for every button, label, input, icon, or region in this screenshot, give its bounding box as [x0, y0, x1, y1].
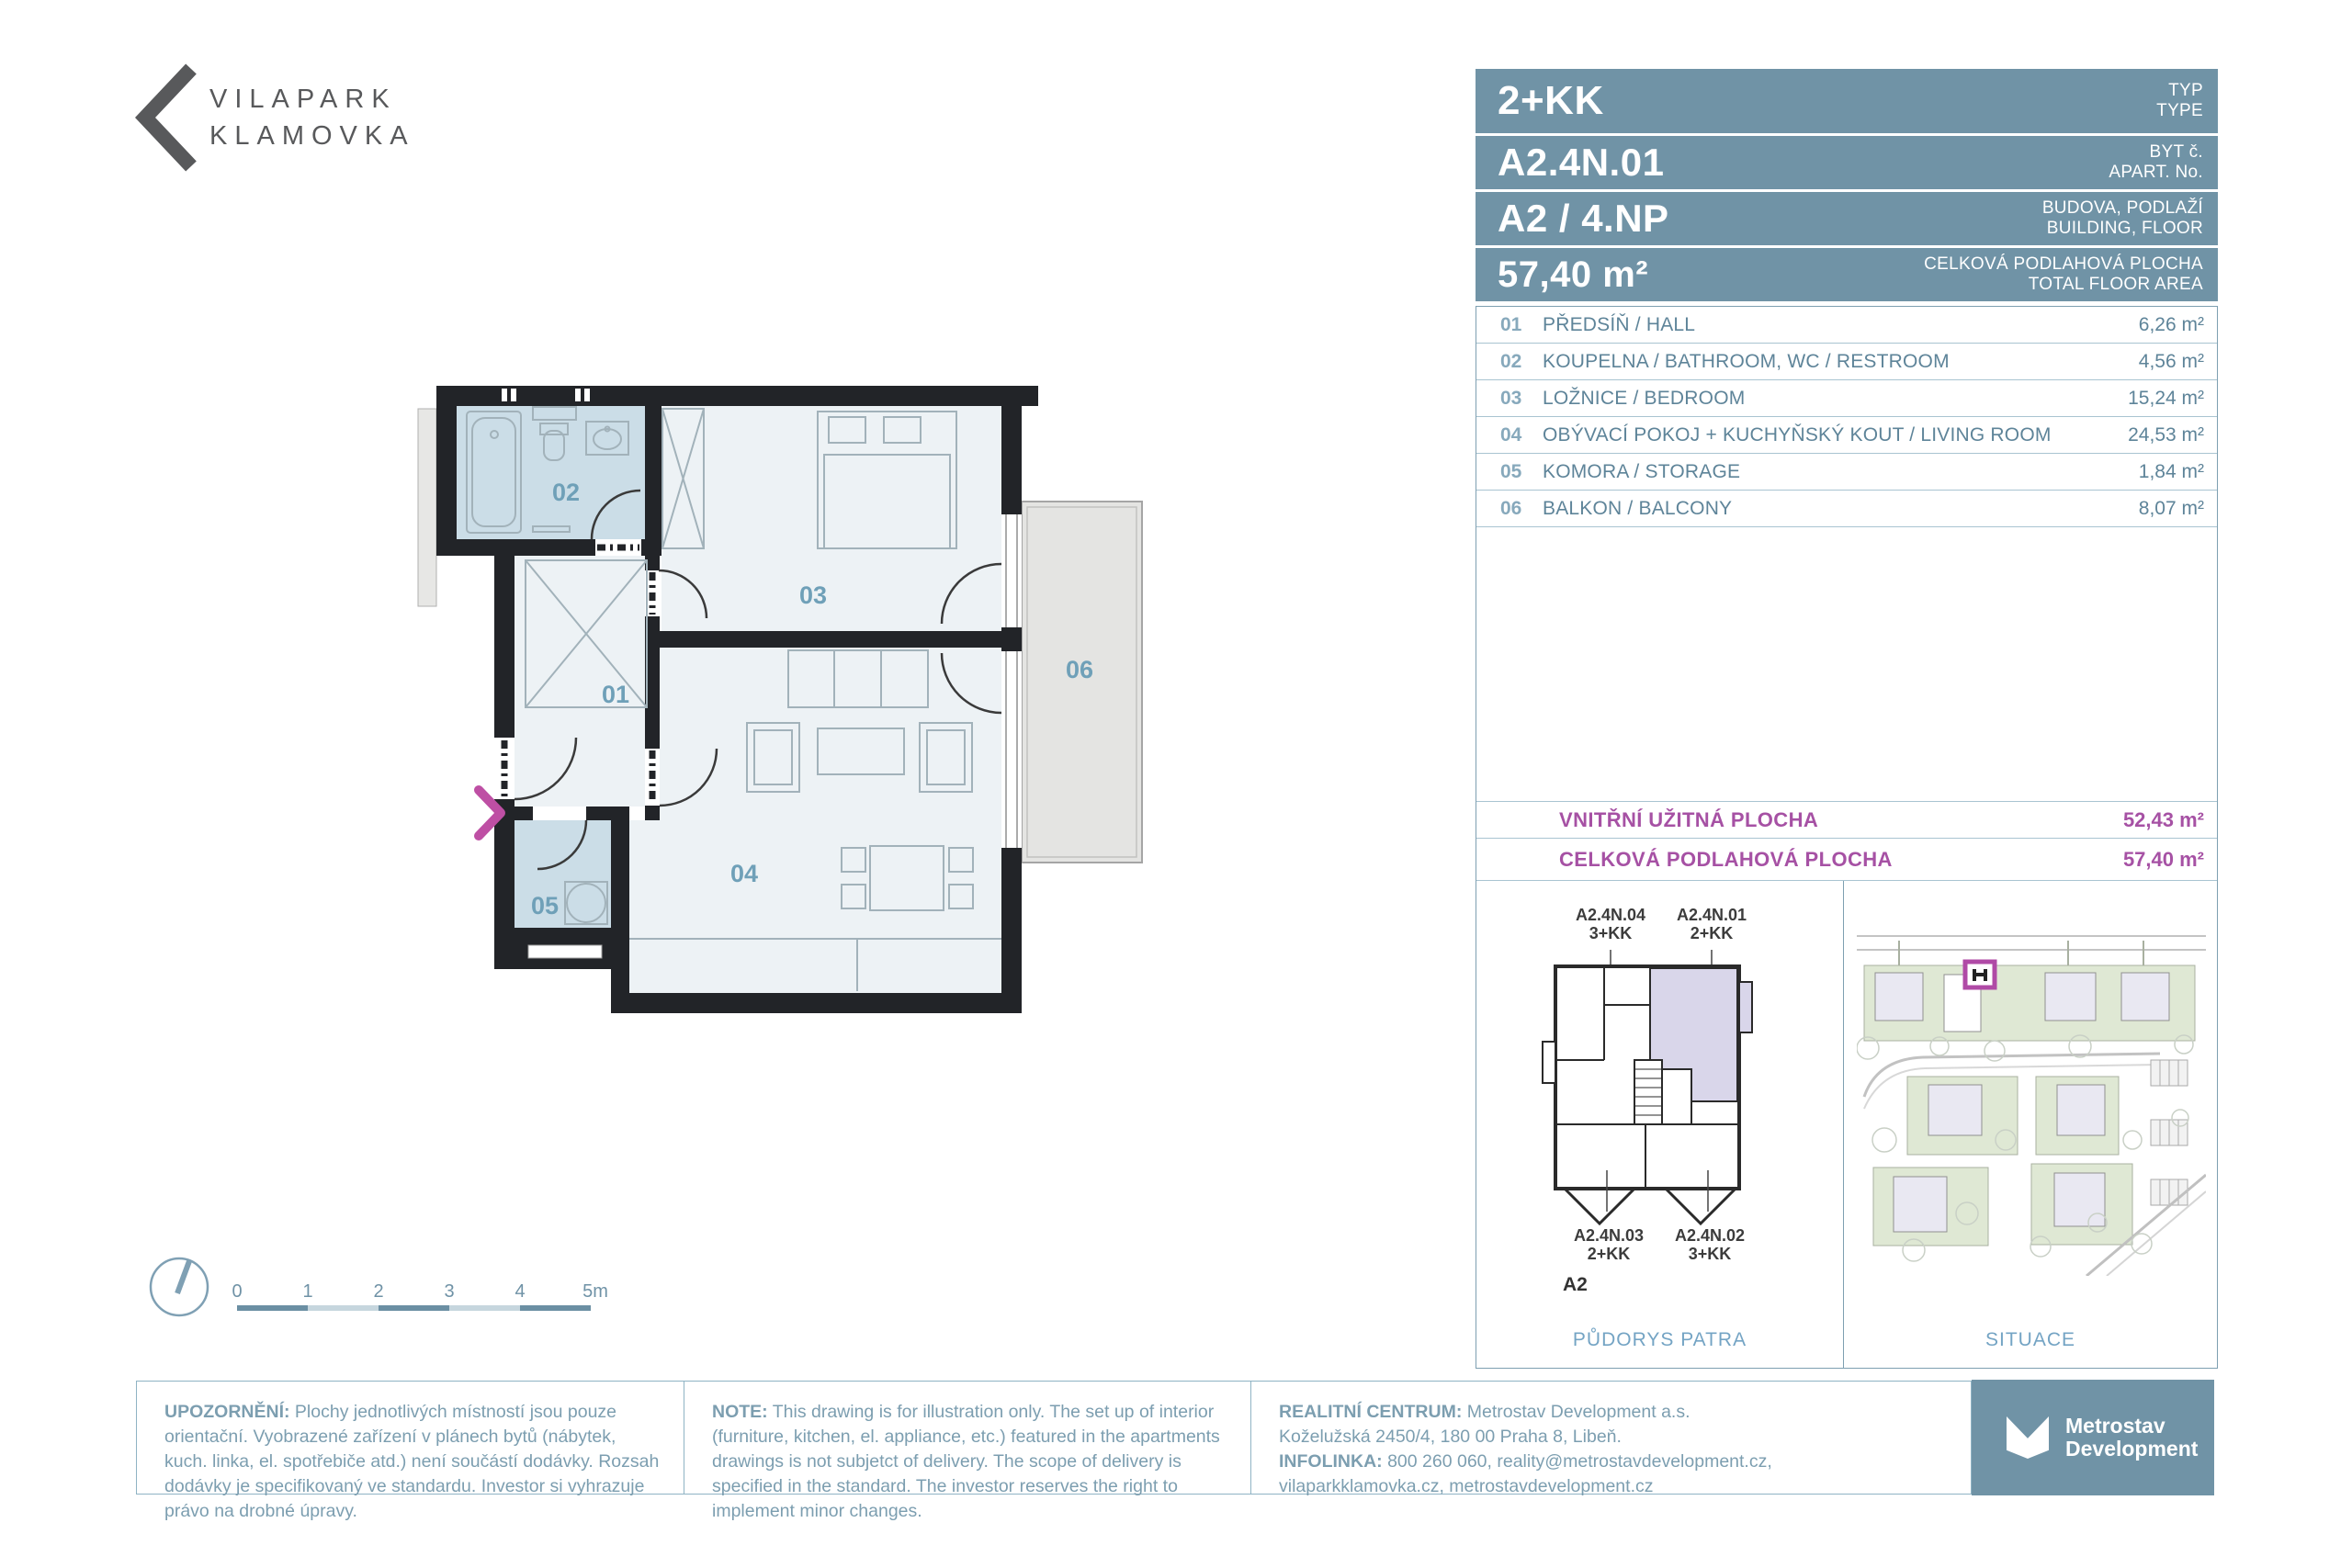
total-floor-area-row: CELKOVÁ PODLAHOVÁ PLOCHA 57,40 m²	[1476, 839, 2217, 881]
unit-label-bottom-right: A2.4N.02 3+KK	[1645, 1226, 1774, 1263]
scale-seg	[379, 1305, 449, 1311]
apartment-floor-plan: 02 01 03 04 05 06	[413, 381, 1144, 1015]
scale-4: 4	[514, 1281, 525, 1303]
total-area-value: 57,40 m²	[1498, 254, 1648, 296]
bathroom-02-floor	[457, 406, 649, 539]
unit-label-top-right: A2.4N.01 2+KK	[1647, 906, 1776, 942]
header-apartment-no: A2.4N.01 BYT č. APART. No.	[1476, 136, 2218, 189]
scale-3: 3	[444, 1281, 454, 1303]
north-compass-icon	[147, 1255, 211, 1319]
scale-seg	[308, 1305, 379, 1311]
label-room-01: 01	[602, 681, 629, 708]
type-value: 2+KK	[1498, 78, 1604, 124]
diagram-area: A2.4N.04 3+KK A2.4N.01 2+KK	[1476, 881, 2217, 1368]
floor-overview-drawing	[1508, 950, 1811, 1235]
table-row: 02 KOUPELNA / BATHROOM, WC / RESTROOM 4,…	[1476, 344, 2217, 380]
table-row: 04 OBÝVACÍ POKOJ + KUCHYŇSKÝ KOUT / LIVI…	[1476, 417, 2217, 454]
building-floor-label: BUDOVA, PODLAŽÍ BUILDING, FLOOR	[2042, 198, 2203, 239]
situation-caption: SITUACE	[1844, 1329, 2217, 1351]
scale-seg	[520, 1305, 591, 1311]
label-room-03: 03	[799, 581, 827, 609]
table-row: 03 LOŽNICE / BEDROOM 15,24 m²	[1476, 380, 2217, 417]
storage-05-floor	[514, 820, 611, 928]
type-label: TYP TYPE	[2156, 81, 2203, 121]
brand-line2: KLAMOVKA	[209, 118, 415, 154]
scale-seg	[237, 1305, 308, 1311]
brand-line1: VILAPARK	[209, 81, 415, 118]
contact-block: REALITNÍ CENTRUM: Metrostav Development …	[1251, 1381, 1972, 1495]
apartment-no-value: A2.4N.01	[1498, 141, 1664, 185]
header-building-floor: A2 / 4.NP BUDOVA, PODLAŽÍ BUILDING, FLOO…	[1476, 192, 2218, 245]
scale-2: 2	[373, 1281, 383, 1303]
note-czech: UPOZORNĚNÍ: Plochy jednotlivých místnost…	[136, 1381, 684, 1495]
scale-5m: 5m	[582, 1281, 608, 1303]
table-row: 01 PŘEDSÍŇ / HALL 6,26 m²	[1476, 307, 2217, 344]
balcony-glazing	[1001, 514, 1022, 848]
room-table-panel: 01 PŘEDSÍŇ / HALL 6,26 m² 02 KOUPELNA / …	[1476, 306, 2218, 1369]
header-type: 2+KK TYP TYPE	[1476, 69, 2218, 133]
table-row: 05 KOMORA / STORAGE 1,84 m²	[1476, 454, 2217, 491]
scale-seg	[449, 1305, 520, 1311]
apartment-datasheet: { "brand": { "line1": "VILAPARK", "line2…	[0, 0, 2352, 1568]
metrostav-logo-text: Metrostav Development	[2065, 1415, 2198, 1461]
total-inner-area-row: VNITŘNÍ UŽITNÁ PLOCHA 52,43 m²	[1476, 802, 2217, 839]
label-room-06: 06	[1066, 656, 1093, 683]
living-04-floor	[629, 648, 1001, 993]
label-room-02: 02	[552, 479, 580, 506]
metrostav-m-icon	[2007, 1416, 2049, 1459]
building-code: A2	[1563, 1274, 1588, 1296]
niche	[528, 945, 602, 958]
apartment-no-label: BYT č. APART. No.	[2109, 142, 2203, 183]
situation-map: SITUACE	[1843, 881, 2217, 1368]
metrostav-logo-box: Metrostav Development	[1972, 1380, 2214, 1495]
table-row: 06 BALKON / BALCONY 8,07 m²	[1476, 491, 2217, 527]
scale-0: 0	[232, 1281, 242, 1303]
floor-overview: A2.4N.04 3+KK A2.4N.01 2+KK	[1476, 881, 1843, 1368]
entrance-wedges	[1565, 1189, 1736, 1224]
header-total-area: 57,40 m² CELKOVÁ PODLAHOVÁ PLOCHA TOTAL …	[1476, 248, 2218, 301]
table-spacer	[1476, 527, 2217, 802]
situation-drawing	[1857, 908, 2206, 1276]
floor-overview-caption: PŮDORYS PATRA	[1476, 1329, 1843, 1351]
label-room-04: 04	[730, 860, 758, 887]
scale-1: 1	[302, 1281, 312, 1303]
window-ledge	[418, 409, 436, 606]
label-room-05: 05	[531, 892, 559, 919]
note-english: NOTE: This drawing is for illustration o…	[684, 1381, 1251, 1495]
total-area-label: CELKOVÁ PODLAHOVÁ PLOCHA TOTAL FLOOR ARE…	[1924, 254, 2203, 295]
vilapark-klamovka-logo: VILAPARK KLAMOVKA	[129, 55, 514, 184]
building-floor-value: A2 / 4.NP	[1498, 197, 1669, 241]
brand-name: VILAPARK KLAMOVKA	[209, 81, 415, 154]
